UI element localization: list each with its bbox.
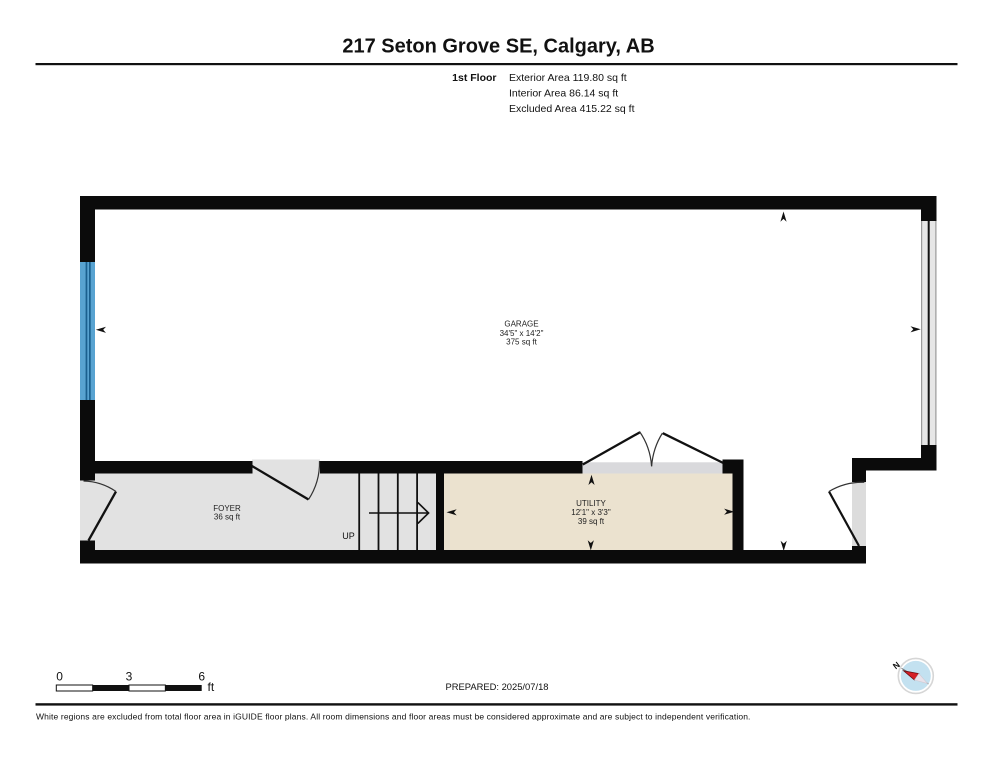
svg-text:Interior Area 86.14 sq ft: Interior Area 86.14 sq ft — [509, 88, 618, 100]
svg-text:PREPARED: 2025/07/18: PREPARED: 2025/07/18 — [445, 681, 548, 692]
svg-text:6: 6 — [198, 670, 205, 684]
svg-text:12'1" x 3'3": 12'1" x 3'3" — [571, 508, 611, 517]
svg-text:217 Seton Grove SE, Calgary, A: 217 Seton Grove SE, Calgary, AB — [342, 35, 654, 57]
svg-text:375 sq ft: 375 sq ft — [506, 338, 537, 347]
svg-text:White regions are excluded fro: White regions are excluded from total fl… — [36, 712, 751, 722]
svg-text:UTILITY: UTILITY — [576, 499, 606, 508]
svg-text:UP: UP — [342, 531, 355, 541]
svg-text:Excluded Area 415.22 sq ft: Excluded Area 415.22 sq ft — [509, 103, 635, 115]
svg-text:ft: ft — [208, 680, 215, 694]
svg-text:39 sq ft: 39 sq ft — [578, 517, 605, 526]
svg-text:3: 3 — [126, 670, 133, 684]
svg-text:0: 0 — [56, 670, 63, 684]
svg-text:Exterior Area 119.80 sq ft: Exterior Area 119.80 sq ft — [509, 72, 627, 84]
svg-text:36 sq ft: 36 sq ft — [214, 513, 241, 522]
svg-text:GARAGE: GARAGE — [504, 320, 538, 329]
svg-text:1st Floor: 1st Floor — [452, 72, 496, 84]
